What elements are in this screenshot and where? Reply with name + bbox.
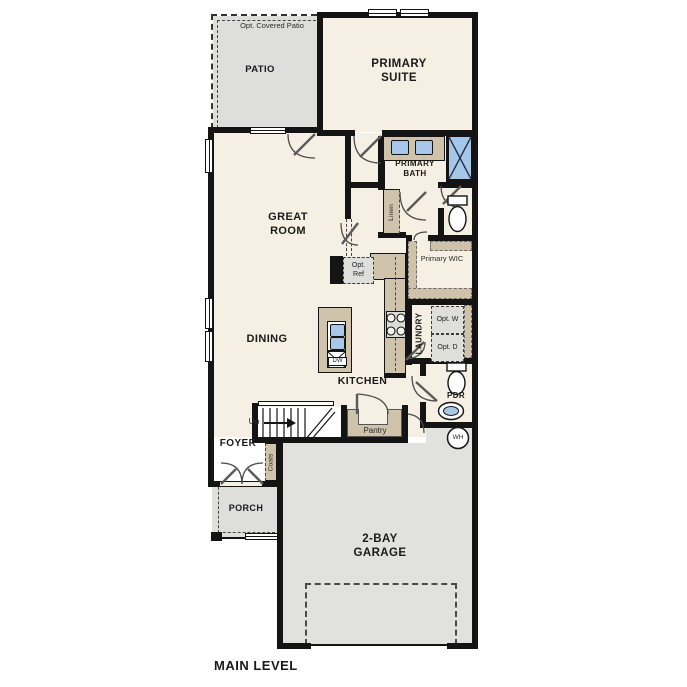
range-burners	[387, 314, 405, 335]
room-label-great-room: GREAT ROOM	[252, 211, 324, 239]
room-label-dining: DINING	[232, 333, 302, 347]
room-label-primary-bath: PRIMARY BATH	[386, 159, 444, 179]
water-heater-label: WH	[449, 434, 467, 441]
stairs-up-label: Up	[246, 417, 262, 427]
patio-note: Opt. Covered Patio	[226, 22, 318, 31]
room-label-primary-suite: PRIMARY SUITE	[357, 57, 441, 86]
shower-x	[449, 137, 471, 179]
room-label-garage: 2-BAY GARAGE	[338, 532, 422, 561]
plan-linework	[0, 0, 687, 687]
room-label-patio: PATIO	[238, 64, 282, 76]
room-label-primary-wic: Primary WIC	[418, 255, 466, 264]
pdr-sink-icon	[439, 403, 464, 420]
room-label-foyer: FOYER	[216, 438, 260, 451]
floor-plan: Opt. Ref Opt. W Opt. D	[0, 0, 687, 687]
toilet-icon	[447, 196, 467, 395]
room-label-coats: Coats	[261, 448, 281, 476]
room-label-linen: Linen	[381, 198, 401, 226]
dishwasher-label: DW	[328, 357, 347, 366]
page-title: MAIN LEVEL	[214, 658, 324, 674]
room-label-kitchen: KITCHEN	[330, 375, 395, 388]
room-label-pantry: Pantry	[355, 426, 395, 435]
room-label-porch: PORCH	[222, 503, 270, 514]
room-label-pdr: PDR	[441, 391, 471, 401]
room-label-laundry: LAUNDRY	[408, 308, 430, 358]
